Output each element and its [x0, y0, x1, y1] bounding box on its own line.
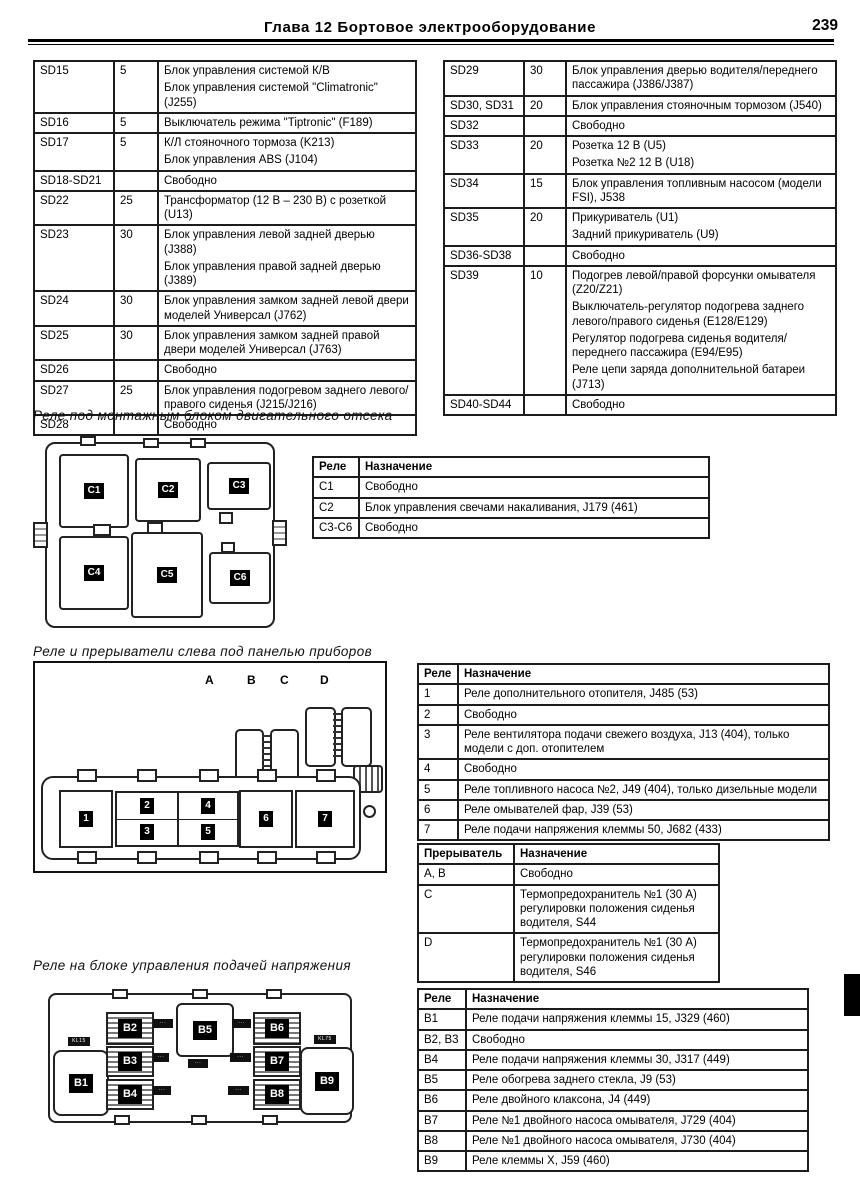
connector-slot [147, 522, 163, 534]
table-row: SD18-SD21Свободно [34, 171, 416, 191]
breaker-letter-a: A [205, 673, 214, 687]
section-heading-dash-relays: Реле и прерыватели слева под панелью при… [33, 644, 372, 659]
table-row: 4Свободно [418, 759, 829, 779]
relay-c3: C3 [207, 462, 271, 510]
relay-label-3: 3 [140, 824, 154, 840]
section-heading-engine-bay-relays: Реле под монтажным блоком двигательного … [33, 408, 393, 423]
notch [112, 989, 128, 999]
micro-badge: ··· [153, 1053, 169, 1062]
page-title: Глава 12 Бортовое электрооборудование [0, 19, 860, 36]
section-heading-power-supply-relays: Реле на блоке управления подачей напряже… [33, 958, 351, 973]
relay-b9: B9 [300, 1047, 354, 1115]
table-row: 7Реле подачи напряжения клеммы 50, J682 … [418, 820, 829, 840]
relay-1: 1 [59, 790, 113, 848]
table-row: SD175К/Л стояночного тормоза (K213)Блок … [34, 133, 416, 171]
relay-label-b3: B3 [118, 1052, 142, 1071]
fuse-table-left: SD155Блок управления системой К/ВБлок уп… [33, 60, 417, 436]
breaker-letter-d: D [320, 673, 329, 687]
table-row: SD3910Подогрев левой/правой форсунки омы… [444, 266, 836, 395]
dash-relay-table: РелеНазначение 1Реле дополнительного ото… [417, 663, 830, 841]
relay-c6: C6 [209, 552, 271, 604]
table-row: C2Блок управления свечами накаливания, J… [313, 498, 709, 518]
table-row: C3-C6Свободно [313, 518, 709, 538]
table-row: SD32Свободно [444, 116, 836, 136]
relay-2: 2 [117, 793, 177, 819]
table-row: SD2430Блок управления замком задней лево… [34, 291, 416, 326]
micro-badge: ··· [153, 1086, 171, 1095]
terminal-badge-kl15: KL15 [68, 1037, 90, 1046]
thermal-breaker [305, 707, 336, 767]
power-supply-relay-diagram: KL15 B1 B2 B3 B4 ··· ··· ··· B5 ··· ··· … [48, 993, 352, 1123]
header-rule-thin [28, 44, 834, 45]
relay-label-b7: B7 [265, 1052, 289, 1071]
relay-b6: B6 [253, 1012, 301, 1045]
breaker-ribs [333, 713, 341, 759]
strip-tab [137, 769, 157, 782]
mount-tab-right [272, 520, 287, 546]
relay-label-6: 6 [259, 811, 273, 827]
header-rule-thick [28, 39, 834, 42]
relay-label-1: 1 [79, 811, 93, 827]
relay-label-b8: B8 [265, 1085, 289, 1104]
table-row: SD2225Трансформатор (12 В – 230 В) с роз… [34, 191, 416, 226]
strip-tab [199, 769, 219, 782]
breaker-letter-c: C [280, 673, 289, 687]
relay-4: 4 [179, 793, 237, 819]
relay-label-c1: C1 [84, 483, 105, 499]
table-row: SD26Свободно [34, 360, 416, 380]
table-row: B9Реле клеммы X, J59 (460) [418, 1151, 808, 1171]
relay-label-7: 7 [318, 811, 332, 827]
strip-tab [316, 769, 336, 782]
table-row: C1Свободно [313, 477, 709, 497]
connector-slot [93, 524, 111, 536]
relay-b2: B2 [106, 1012, 154, 1045]
strip-tab [316, 851, 336, 864]
table-row: B8Реле №1 двойного насоса омывателя, J73… [418, 1131, 808, 1151]
relay-label-b2: B2 [118, 1019, 142, 1038]
table-row: SD165Выключатель режима "Tiptronic" (F18… [34, 113, 416, 133]
strip-tab [199, 851, 219, 864]
relay-label-5: 5 [201, 824, 215, 840]
table-row: SD155Блок управления системой К/ВБлок уп… [34, 61, 416, 113]
table-row: DТермопредохранитель №1 (30 А) регулиров… [418, 933, 719, 982]
relay-label-b4: B4 [118, 1085, 142, 1104]
notch [114, 1115, 130, 1125]
strip-tab [77, 769, 97, 782]
fuse-table-right: SD2930Блок управления дверью водителя/пе… [443, 60, 837, 416]
notch [190, 438, 206, 448]
relay-7: 7 [295, 790, 355, 848]
table-row: SD2930Блок управления дверью водителя/пе… [444, 61, 836, 96]
mount-tab-left [33, 522, 48, 548]
relay-label-b6: B6 [265, 1019, 289, 1038]
notch [192, 989, 208, 999]
relay-label-b9: B9 [315, 1072, 339, 1091]
table-row: 2Свободно [418, 705, 829, 725]
table-row: SD40-SD44Свободно [444, 395, 836, 415]
table-row: B5Реле обогрева заднего стекла, J9 (53) [418, 1070, 808, 1090]
mount-hole [363, 805, 376, 818]
relay-4-5: 4 5 [177, 791, 239, 847]
relay-b8: B8 [253, 1079, 301, 1110]
table-row: SD2530Блок управления замком задней прав… [34, 326, 416, 361]
table-row: B4Реле подачи напряжения клеммы 30, J317… [418, 1050, 808, 1070]
relay-c4: C4 [59, 536, 129, 610]
notch [80, 436, 96, 446]
table-row: 1Реле дополнительного отопителя, J485 (5… [418, 684, 829, 704]
strip-tab [257, 769, 277, 782]
chapter-thumb-tab [844, 974, 860, 1016]
table-row: SD3520Прикуриватель (U1)Задний прикурива… [444, 208, 836, 246]
relay-b3: B3 [106, 1046, 154, 1077]
table-row: 5Реле топливного насоса №2, J49 (404), т… [418, 780, 829, 800]
relay-b1: B1 [53, 1050, 109, 1116]
table-row: SD2330Блок управления левой задней дверь… [34, 225, 416, 291]
micro-badge: ··· [153, 1019, 173, 1028]
table-row: B6Реле двойного клаксона, J4 (449) [418, 1090, 808, 1110]
relay-5: 5 [179, 819, 237, 846]
table-row: SD3320Розетка 12 В (U5)Розетка №2 12 В (… [444, 136, 836, 174]
connector-slot [221, 542, 235, 553]
strip-tab [77, 851, 97, 864]
page-number: 239 [812, 17, 838, 35]
notch [266, 989, 282, 999]
engine-bay-relay-table: РелеНазначение C1Свободно C2Блок управле… [312, 456, 710, 539]
relay-3: 3 [117, 819, 177, 846]
relay-b7: B7 [253, 1046, 301, 1077]
micro-badge: ··· [230, 1053, 251, 1062]
table-row: SD3415Блок управления топливным насосом … [444, 174, 836, 209]
connector-slot [219, 512, 233, 524]
dash-relay-diagram: A B C D 1 2 3 4 5 6 7 [33, 661, 387, 873]
table-row: SD30, SD3120Блок управления стояночным т… [444, 96, 836, 116]
power-supply-relay-table: РелеНазначение B1Реле подачи напряжения … [417, 988, 809, 1172]
table-row: CТермопредохранитель №1 (30 А) регулиров… [418, 885, 719, 934]
breaker-table: ПрерывательНазначение A, BСвободно CТерм… [417, 843, 720, 983]
table-row: SD36-SD38Свободно [444, 246, 836, 266]
micro-badge: ··· [188, 1059, 208, 1068]
thermal-breaker [341, 707, 372, 767]
relay-c1: C1 [59, 454, 129, 528]
relay-b5: B5 [176, 1003, 234, 1057]
table-row: B2, B3Свободно [418, 1030, 808, 1050]
relay-label-b1: B1 [69, 1074, 93, 1093]
table-row: 3Реле вентилятора подачи свежего воздуха… [418, 725, 829, 760]
table-row: A, BСвободно [418, 864, 719, 884]
notch [191, 1115, 207, 1125]
engine-bay-relay-diagram: C1 C2 C3 C4 C5 C6 [45, 436, 277, 630]
notch [143, 438, 159, 448]
micro-badge: ··· [228, 1086, 249, 1095]
table-row: 6Реле омывателей фар, J39 (53) [418, 800, 829, 820]
strip-tab [257, 851, 277, 864]
relay-6: 6 [239, 790, 293, 848]
table-row: B1Реле подачи напряжения клеммы 15, J329… [418, 1009, 808, 1029]
table-header-row: РелеНазначение [313, 457, 709, 477]
relay-label-4: 4 [201, 798, 215, 814]
notch [262, 1115, 278, 1125]
relay-label-c3: C3 [229, 478, 250, 494]
table-row: B7Реле №1 двойного насоса омывателя, J72… [418, 1111, 808, 1131]
relay-2-3: 2 3 [115, 791, 179, 847]
relay-c2: C2 [135, 458, 201, 522]
relay-label-c6: C6 [230, 570, 251, 586]
relay-label-c5: C5 [157, 567, 178, 583]
table-header-row: РелеНазначение [418, 989, 808, 1009]
relay-label-c2: C2 [158, 482, 179, 498]
terminal-badge-kl75: KL75 [314, 1035, 336, 1044]
breaker-letter-b: B [247, 673, 256, 687]
relay-c5: C5 [131, 532, 203, 618]
manual-page: Глава 12 Бортовое электрооборудование 23… [0, 0, 860, 1200]
table-header-row: РелеНазначение [418, 664, 829, 684]
strip-tab [137, 851, 157, 864]
relay-b4: B4 [106, 1079, 154, 1110]
relay-label-b5: B5 [193, 1021, 217, 1040]
micro-badge: ··· [232, 1019, 251, 1028]
table-header-row: ПрерывательНазначение [418, 844, 719, 864]
relay-label-c4: C4 [84, 565, 105, 581]
relay-label-2: 2 [140, 798, 154, 814]
